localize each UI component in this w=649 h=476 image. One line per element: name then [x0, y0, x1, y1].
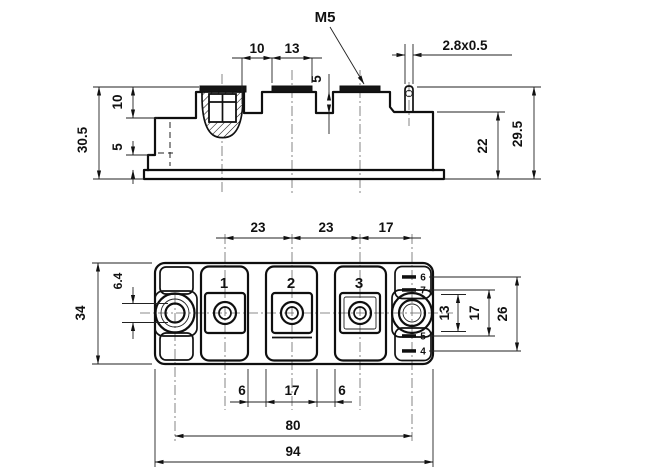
right-mounting-section: [392, 267, 433, 361]
dim-notch-depth-value: 5: [309, 75, 324, 83]
dim-hole-diameter-value: 6.4: [111, 272, 125, 289]
case-body-outline-side: [148, 92, 433, 170]
dim-center-block-value: 17: [284, 383, 299, 398]
dim-top-step: 10: [110, 87, 158, 118]
dim-hole-pitch: 80: [175, 418, 412, 436]
dim-tab-cross-section: 2.8x0.5: [392, 38, 512, 84]
thread-callout: M5: [315, 9, 364, 84]
pin-7-label: 7: [420, 286, 426, 297]
dim-pin-spans: 13 17 26: [429, 277, 521, 351]
dim-pin-span-inner-value: 13: [437, 305, 452, 321]
aux-pin-4: 4: [402, 347, 426, 358]
side-view-centerlines: [222, 70, 409, 193]
dim-module-length-value: 94: [285, 444, 301, 459]
dim-groove-chain: 6 17 6: [230, 369, 352, 407]
thread-label: M5: [315, 9, 336, 26]
dim-tab-height-value: 29.5: [510, 120, 525, 147]
baseplate-side: [144, 170, 444, 179]
pin-6-label: 6: [420, 273, 426, 284]
dim-total-height: 30.5: [75, 87, 199, 179]
dim-case-height-value: 22: [475, 138, 490, 153]
terminal-1-cap: [200, 86, 246, 92]
hidden-edges: [158, 122, 173, 166]
left-mounting-section: [155, 267, 197, 360]
dim-pitch-t1-t2-value: 23: [250, 220, 266, 235]
dim-top-step-value: 10: [110, 94, 125, 109]
dim-pad-width-value: 13: [284, 41, 300, 56]
dim-hole-pitch-value: 80: [285, 418, 300, 433]
terminal-1-section: [200, 86, 246, 138]
terminal-3-pad-side: [340, 86, 380, 92]
dim-module-width-value: 34: [73, 305, 88, 321]
module-outline-drawing: 30.5 10 5 10 13: [0, 0, 649, 476]
dim-groove-left-value: 6: [238, 383, 246, 398]
terminal-2-label: 2: [287, 275, 295, 292]
dim-notch-depth: 5: [309, 74, 329, 134]
dim-pin-span-mid-value: 17: [467, 305, 482, 320]
plan-view: 1 2 3: [73, 220, 521, 467]
dim-pitch-t2-t3-value: 23: [318, 220, 334, 235]
side-view: 30.5 10 5 10 13: [75, 9, 541, 193]
dim-flange-height-value: 5: [110, 143, 125, 151]
dim-terminal-gap-and-pad: 10 13: [232, 41, 322, 104]
dim-t3-to-hole-value: 17: [378, 220, 393, 235]
aux-pin-6: 6: [402, 273, 426, 284]
dim-pin-span-outer-value: 26: [495, 306, 510, 322]
terminal-3-label: 3: [355, 275, 363, 292]
pin-4-label: 4: [420, 347, 426, 358]
terminal-3: 3: [340, 275, 380, 333]
dim-tab-height: 29.5: [417, 87, 541, 179]
dim-terminal-gap-value: 10: [249, 41, 264, 56]
terminal-1-label: 1: [220, 275, 228, 292]
pin-5-label: 5: [420, 332, 426, 343]
dim-flange-height: 5: [110, 141, 152, 184]
terminal-1: 1: [205, 275, 245, 333]
dim-tab-cross-section-value: 2.8x0.5: [442, 38, 488, 53]
dim-case-height: 22: [437, 112, 505, 179]
dim-terminal-pitches: 23 23 17: [216, 220, 421, 238]
drawing-page: 30.5 10 5 10 13: [0, 0, 649, 476]
terminal-2-pad-side: [272, 86, 312, 92]
dim-groove-right-value: 6: [338, 383, 346, 398]
dim-total-height-value: 30.5: [75, 126, 90, 153]
